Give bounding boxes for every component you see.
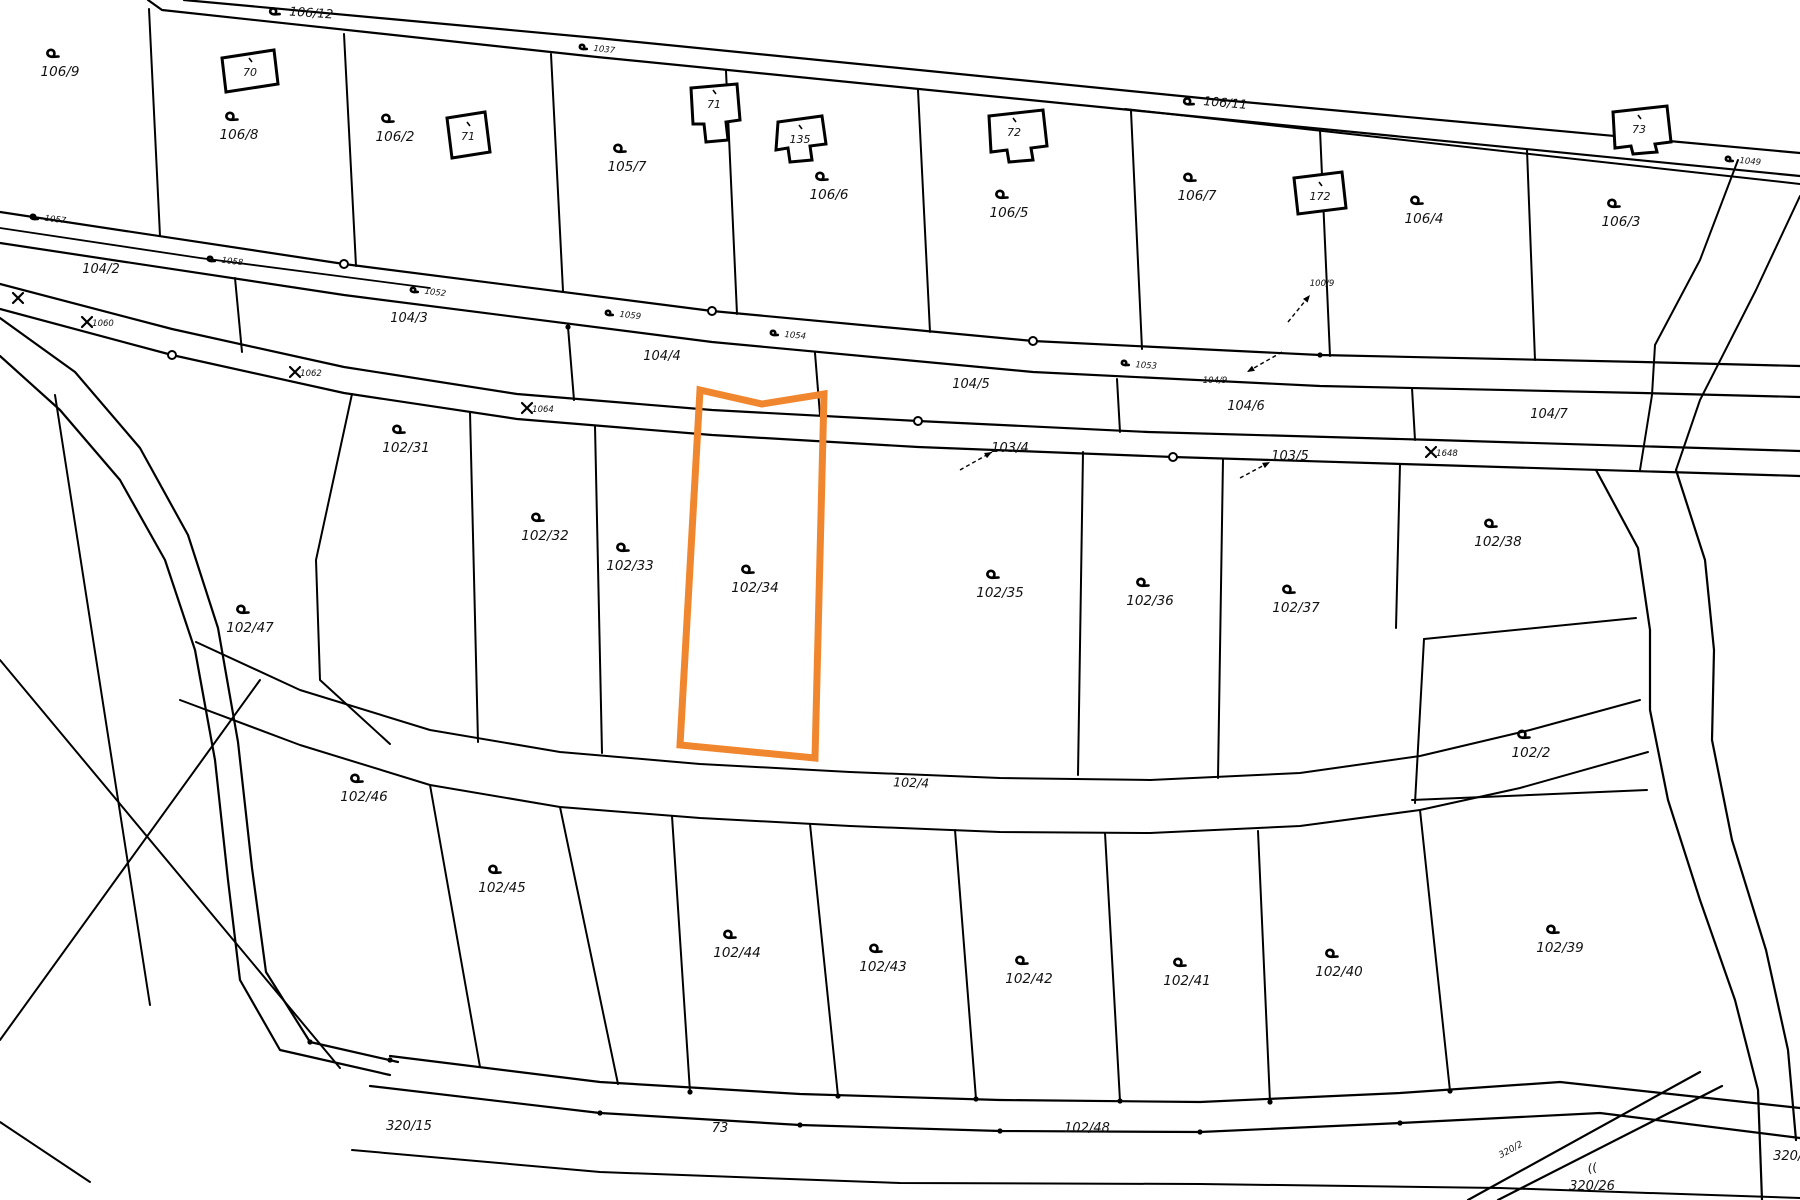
parcel-label-106-2: 106/2 (376, 129, 415, 145)
boundary-line-div-102-31-32 (470, 412, 478, 742)
survey-point-dot-icon (1397, 1120, 1402, 1125)
survey-point-dot-icon (597, 1110, 602, 1115)
survey-marker-icon (1726, 157, 1733, 161)
survey-label-1053: 1053 (1135, 360, 1157, 371)
boundary-line-right-curve-1 (1596, 470, 1762, 1200)
boundary-line-div-102-44-left (672, 816, 690, 1092)
parcel-label-103-4: 103/4 (991, 441, 1028, 456)
parcel-label-102-38: 102/38 (1474, 534, 1522, 550)
building-number-72: 72 (1007, 126, 1021, 139)
survey-point-circle-icon (914, 417, 922, 425)
survey-label-1054: 1054 (784, 330, 806, 342)
boundary-line-div-102-36-37 (1218, 459, 1223, 778)
building-number-135: 135 (790, 133, 811, 146)
building-number-71: 71 (707, 98, 721, 111)
boundary-line-div-104-5 (1412, 388, 1415, 440)
parcel-label-102-39: 102/39 (1536, 940, 1584, 956)
parcel-marker-icon (996, 191, 1007, 198)
boundary-line-left-road-outer (0, 356, 390, 1075)
boundary-line-div-102-35-36 (1078, 452, 1083, 775)
parcel-label-102-48: 102/48 (1064, 1121, 1110, 1136)
annotation--: (( (1586, 1160, 1599, 1176)
parcel-label-102-43: 102/43 (859, 959, 907, 975)
survey-label-1060: 1060 (92, 319, 114, 329)
parcel-label-102-34: 102/34 (731, 580, 779, 596)
arrow-103-5-head-icon (1262, 462, 1270, 468)
survey-label-1064: 1064 (532, 405, 554, 415)
parcel-label-102-31: 102/31 (382, 440, 430, 456)
boundary-line-div-106-6 (1131, 111, 1142, 349)
parcel-label-102-47: 102/47 (226, 620, 274, 636)
parcel-marker-icon (1137, 579, 1148, 586)
survey-label-1037: 1037 (593, 44, 616, 56)
boundary-line-right-top-b (1676, 196, 1800, 470)
parcel-label-102-36: 102/36 (1126, 593, 1174, 609)
boundary-line-div-104-3 (815, 353, 820, 415)
parcel-label-102-40: 102/40 (1315, 964, 1363, 980)
survey-point-circle-icon (1169, 453, 1177, 461)
boundary-line-div-106-7 (1320, 130, 1330, 356)
parcel-label-104-6: 104/6 (1227, 399, 1264, 414)
boundary-line-div-106-8 (1527, 150, 1535, 360)
survey-point-dot-icon (1197, 1129, 1202, 1134)
parcel-marker-icon (1518, 731, 1529, 738)
parcel-marker-icon (1547, 926, 1558, 933)
parcel-marker-icon (382, 115, 393, 122)
boundary-line-div-102-46-45 (430, 785, 480, 1067)
boundary-line-div-102-37-38 (1396, 464, 1400, 628)
parcel-marker-icon (1184, 174, 1195, 181)
survey-label-104-9: 104/9 (1203, 376, 1228, 386)
boundary-line-road-b-upper (0, 284, 1800, 451)
survey-point-dot-icon (1317, 352, 1322, 357)
parcel-marker-icon (1283, 586, 1294, 593)
building-number-73: 73 (1632, 123, 1646, 136)
parcel-marker-icon (1485, 520, 1496, 527)
parcel-label-104-3: 104/3 (390, 311, 427, 326)
boundary-line-top-road-extra (1125, 109, 1800, 184)
parcel-marker-icon (532, 514, 543, 521)
arrow-104-9-head-icon (1247, 366, 1255, 372)
parcel-marker-icon (742, 566, 753, 573)
parcel-marker-icon (226, 113, 237, 120)
road-marker-icon (1184, 98, 1193, 104)
survey-label-1648: 1648 (1436, 449, 1458, 459)
parcel-marker-icon (351, 775, 362, 782)
boundary-line-road-b-lower (0, 309, 1800, 476)
boundary-line-div-104-1 (235, 278, 242, 352)
parcel-label-102-46: 102/46 (340, 789, 388, 805)
parcel-label-320-26: 320/26 (1569, 1179, 1615, 1194)
survey-point-dot-icon (1117, 1098, 1122, 1103)
parcel-label-106-3: 106/3 (1602, 214, 1641, 230)
parcel-label-102-42: 102/42 (1005, 971, 1053, 987)
boundary-line-div-106-5 (918, 90, 930, 332)
survey-point-dot-icon (687, 1089, 692, 1094)
parcel-label-102-45: 102/45 (478, 880, 526, 896)
parcel-label-104-4: 104/4 (643, 349, 680, 364)
survey-point-dot-icon (387, 1057, 392, 1062)
cadastral-map[interactable]: 7071711357217273106/9106/8106/2105/7106/… (0, 0, 1800, 1200)
parcel-marker-icon (816, 173, 827, 180)
survey-point-circle-icon (708, 307, 716, 315)
boundary-line-div-102-47 (316, 394, 390, 744)
survey-point-dot-icon (1267, 1099, 1272, 1104)
survey-label-1058: 1058 (221, 256, 244, 269)
parcel-label-102-2: 102/2 (1512, 745, 1551, 761)
boundary-line-road-a-lower (0, 243, 1800, 397)
boundary-line-right-top-a (1640, 160, 1738, 470)
parcel-marker-icon (614, 145, 625, 152)
survey-label-1057: 1057 (44, 214, 67, 227)
parcel-label-320-15: 320/15 (386, 1119, 432, 1134)
boundary-line-div-102-44-43 (810, 824, 838, 1096)
survey-label-1059: 1059 (619, 310, 642, 322)
parcel-marker-icon (987, 571, 998, 578)
parcel-marker-icon (237, 606, 248, 613)
boundary-line-parcel-102-2-top (1424, 618, 1636, 639)
arrow-100-9-head-icon (1303, 295, 1310, 303)
survey-point-dot-icon (565, 324, 570, 329)
boundary-line-div-106-3 (551, 54, 563, 291)
selected-parcel-102-34-outline[interactable] (680, 390, 824, 758)
survey-point-circle-icon (340, 260, 348, 268)
parcel-label-73: 73 (712, 1121, 729, 1136)
survey-marker-icon (1122, 361, 1129, 365)
survey-label-1062: 1062 (300, 369, 322, 379)
annotation-320-2: 320/2 (1497, 1139, 1525, 1160)
parcel-label-106-7: 106/7 (1178, 188, 1217, 204)
survey-label-1052: 1052 (424, 287, 447, 300)
boundary-line-div-102-32-33 (595, 426, 602, 753)
boundary-line-left-diag-2 (0, 680, 260, 1040)
parcel-label-106-4: 106/4 (1405, 211, 1444, 227)
boundary-line-div-106-1 (149, 9, 160, 236)
road-label-102-4: 102/4 (893, 774, 930, 790)
parcel-label-104-2: 104/2 (82, 262, 119, 277)
boundary-line-right-curve-2 (1676, 470, 1796, 1140)
parcel-marker-icon (47, 50, 58, 57)
parcel-label-102-37: 102/37 (1272, 600, 1320, 616)
parcel-label-104-7: 104/7 (1530, 407, 1568, 422)
parcel-marker-icon (393, 426, 404, 433)
parcel-label-102-44: 102/44 (713, 945, 761, 961)
survey-point-dot-icon (835, 1093, 840, 1098)
fence-x-icon (522, 403, 532, 413)
parcel-label-320-26: 320/26 (1773, 1149, 1800, 1164)
parcel-label-105-7: 105/7 (608, 159, 647, 175)
parcel-marker-icon (489, 866, 500, 873)
survey-point-dot-icon (973, 1096, 978, 1101)
parcel-marker-icon (1326, 950, 1337, 957)
survey-point-dot-icon (307, 1039, 312, 1044)
boundary-line-road-a-mid (0, 228, 430, 288)
building-number-71: 71 (461, 130, 475, 143)
boundary-line-div-102-43-42 (955, 830, 976, 1099)
boundary-line-bottom-road-1 (390, 1056, 1800, 1108)
parcel-label-106-5: 106/5 (990, 205, 1029, 221)
fence-x-icon (1426, 447, 1436, 457)
boundary-line-div-102-41-40 (1258, 831, 1270, 1102)
parcel-marker-icon (1411, 197, 1422, 204)
parcel-marker-icon (1174, 959, 1185, 966)
parcel-label-102-35: 102/35 (976, 585, 1024, 601)
survey-marker-icon (411, 288, 418, 292)
parcel-marker-icon (870, 945, 881, 952)
boundary-line-div-106-2 (344, 34, 356, 266)
boundary-line-left-wedge (55, 395, 150, 1005)
survey-marker-icon (606, 311, 613, 315)
parcel-marker-icon (1016, 957, 1027, 964)
building-number-172: 172 (1310, 190, 1331, 203)
fence-x-icon (13, 293, 23, 303)
parcel-label-103-5: 103/5 (1271, 449, 1308, 464)
boundary-line-bottom-left-corner (0, 1122, 90, 1182)
building-number-70: 70 (243, 66, 257, 79)
survey-point-circle-icon (1029, 337, 1037, 345)
survey-point-dot-icon (997, 1128, 1002, 1133)
fence-x-icon (82, 317, 92, 327)
parcel-marker-icon (1608, 200, 1619, 207)
boundary-line-top-road-lower (148, 0, 1800, 176)
boundary-line-div-104-2 (568, 327, 574, 400)
parcel-label-102-33: 102/33 (606, 558, 654, 574)
boundary-line-parcel-102-2-bottom (1412, 790, 1647, 800)
parcel-label-104-5: 104/5 (952, 377, 989, 392)
survey-label-100-9: 100/9 (1310, 279, 1335, 289)
parcel-label-102-41: 102/41 (1163, 973, 1211, 989)
survey-point-dot-icon (797, 1122, 802, 1127)
survey-marker-icon (771, 331, 778, 335)
survey-point-circle-icon (168, 351, 176, 359)
survey-point-dot-icon (1447, 1088, 1452, 1093)
boundary-line-div-102-42-41 (1105, 833, 1120, 1101)
parcel-label-106-6: 106/6 (810, 187, 849, 203)
road-label-106-11: 106/11 (1203, 93, 1248, 112)
survey-marker-icon (580, 45, 587, 49)
boundary-line-parcel-102-2-left (1415, 639, 1424, 803)
parcel-label-106-9: 106/9 (41, 64, 80, 80)
cadastral-map-page: 7071711357217273106/9106/8106/2105/7106/… (0, 0, 1800, 1200)
road-label-106-12: 106/12 (289, 3, 334, 21)
boundary-line-div-104-4 (1117, 379, 1120, 432)
parcel-label-106-8: 106/8 (220, 127, 259, 143)
fence-x-icon (290, 367, 300, 377)
boundary-line-div-102-45-x (560, 807, 618, 1084)
survey-label-1049: 1049 (1739, 156, 1761, 168)
parcel-label-102-32: 102/32 (521, 528, 569, 544)
parcel-marker-icon (617, 544, 628, 551)
parcel-marker-icon (724, 931, 735, 938)
boundary-line-div-102-40-39 (1420, 810, 1450, 1091)
boundary-line-left-diag-1 (0, 660, 340, 1068)
